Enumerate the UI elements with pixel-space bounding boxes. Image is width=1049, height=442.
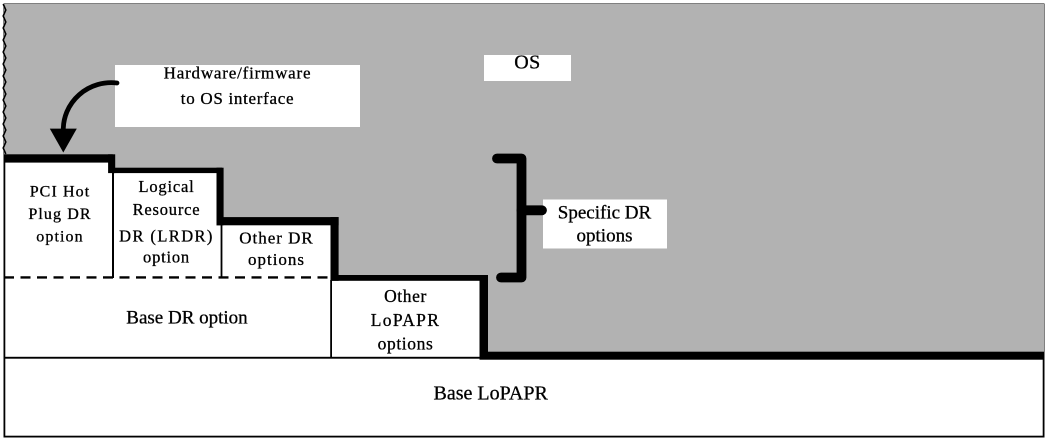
- svg-text:Plug DR: Plug DR: [28, 206, 91, 223]
- svg-text:Base DR option: Base DR option: [126, 307, 248, 328]
- svg-text:Base LoPAPR: Base LoPAPR: [434, 382, 549, 404]
- svg-text:Hardware/firmware: Hardware/firmware: [164, 64, 312, 83]
- svg-text:to OS interface: to OS interface: [181, 89, 294, 108]
- svg-text:option: option: [36, 229, 84, 246]
- svg-text:PCI Hot: PCI Hot: [30, 184, 91, 201]
- svg-text:LoPAPR: LoPAPR: [371, 310, 440, 330]
- svg-text:OS: OS: [514, 52, 541, 74]
- svg-text:options: options: [577, 226, 633, 247]
- svg-text:Resource: Resource: [133, 200, 201, 219]
- svg-text:option: option: [143, 247, 190, 266]
- svg-text:options: options: [248, 250, 305, 269]
- svg-text:DR (LRDR): DR (LRDR): [119, 227, 214, 246]
- svg-text:Other: Other: [384, 286, 427, 306]
- svg-text:Logical: Logical: [139, 177, 195, 196]
- svg-text:Specific DR: Specific DR: [558, 203, 652, 224]
- svg-text:options: options: [378, 334, 434, 354]
- svg-text:Other DR: Other DR: [239, 229, 314, 248]
